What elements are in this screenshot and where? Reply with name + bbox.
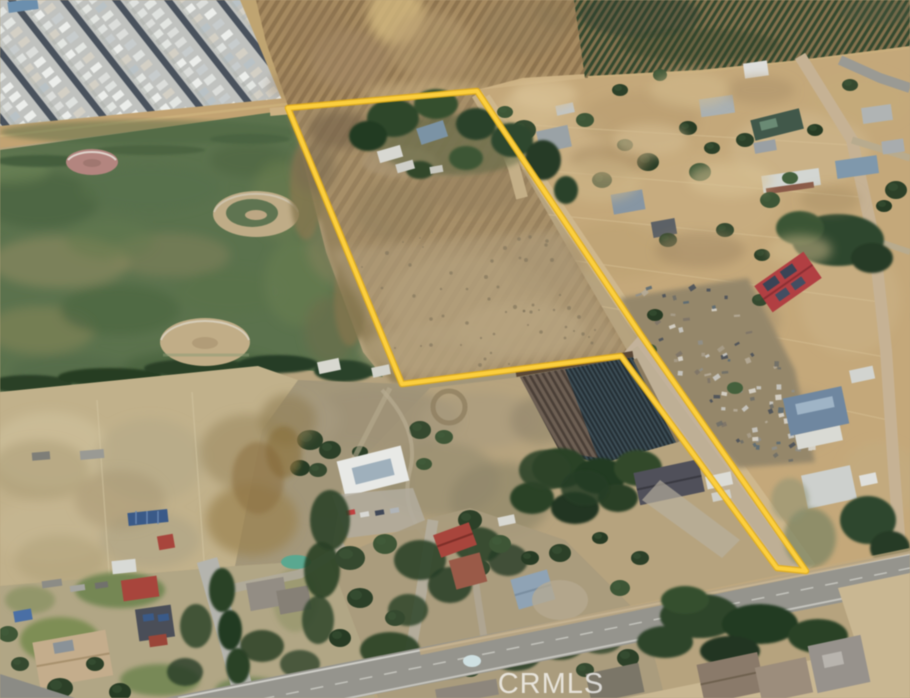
svg-text:CRMLS: CRMLS — [498, 668, 605, 698]
